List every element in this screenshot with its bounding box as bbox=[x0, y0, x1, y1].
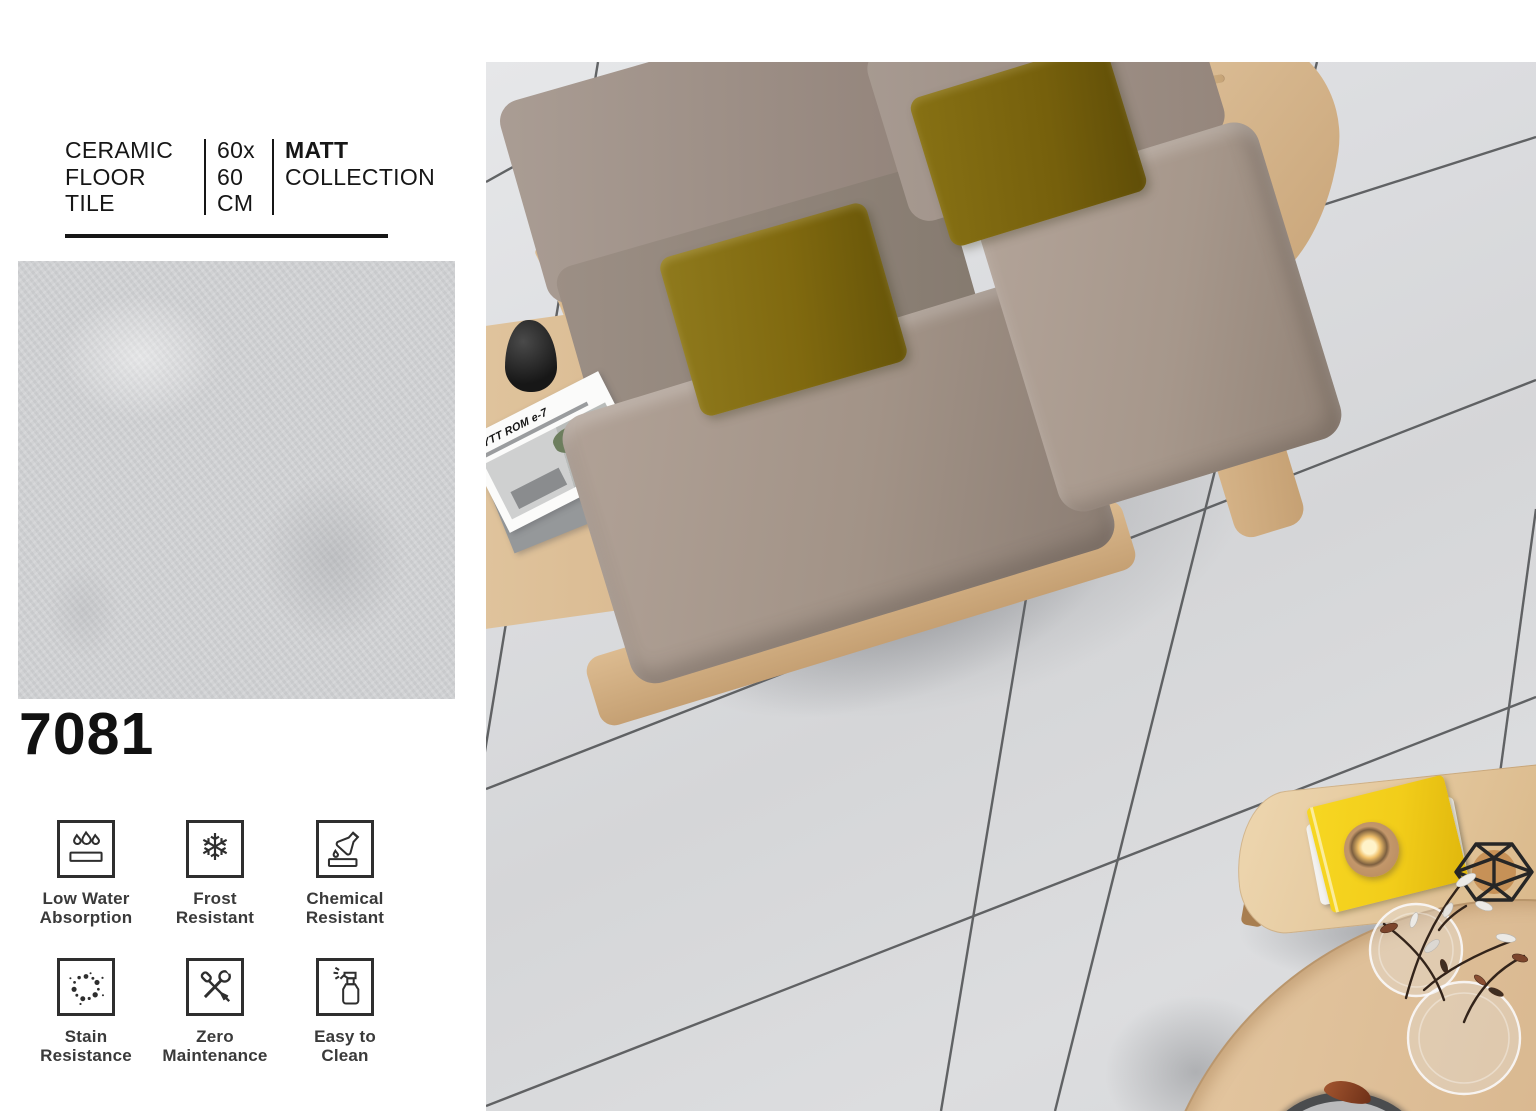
tile-swatch bbox=[18, 261, 455, 699]
glass-vase-with-branches bbox=[1344, 850, 1536, 1111]
feature-box bbox=[186, 958, 244, 1016]
header-rule bbox=[65, 234, 388, 238]
snowflake-icon: ❄ bbox=[199, 829, 230, 866]
feature-label: FrostResistant bbox=[176, 889, 254, 927]
chemical-flask-icon bbox=[323, 827, 367, 871]
feature-box bbox=[57, 958, 115, 1016]
spray-bottle-icon bbox=[323, 965, 367, 1009]
feature-box bbox=[57, 820, 115, 878]
header-divider bbox=[204, 139, 206, 215]
feature-chemical-resistant: ChemicalResistant bbox=[279, 820, 411, 927]
stain-splatter-icon bbox=[64, 965, 108, 1009]
feature-stain-resistance: StainResistance bbox=[20, 958, 152, 1065]
feature-label: ChemicalResistant bbox=[306, 889, 384, 927]
feature-box: ❄ bbox=[186, 820, 244, 878]
tools-icon bbox=[193, 965, 237, 1009]
room-photo: NYTT ROM e-7 bbox=[486, 62, 1536, 1111]
collection-text: MATTCOLLECTION bbox=[285, 137, 435, 217]
feature-zero-maintenance: ZeroMaintenance bbox=[149, 958, 281, 1065]
feature-label: Easy toClean bbox=[314, 1027, 376, 1065]
feature-low-water-absorption: Low WaterAbsorption bbox=[20, 820, 152, 927]
feature-label: ZeroMaintenance bbox=[162, 1027, 267, 1065]
tile-size-text: 60x60CM bbox=[217, 137, 261, 217]
product-code: 7081 bbox=[19, 700, 154, 768]
feature-easy-to-clean: Easy toClean bbox=[279, 958, 411, 1065]
feature-label: Low WaterAbsorption bbox=[40, 889, 133, 927]
feature-frost-resistant: ❄ FrostResistant bbox=[149, 820, 281, 927]
catalog-page: CERAMICFLOORTILE 60x60CM MATTCOLLECTION … bbox=[0, 0, 1536, 1111]
magazine-cover-furniture bbox=[510, 468, 567, 509]
feature-box bbox=[316, 958, 374, 1016]
water-drops-icon bbox=[64, 827, 108, 871]
product-header: CERAMICFLOORTILE 60x60CM MATTCOLLECTION bbox=[65, 137, 435, 217]
product-type-text: CERAMICFLOORTILE bbox=[65, 137, 193, 217]
feature-label: StainResistance bbox=[40, 1027, 132, 1065]
feature-box bbox=[316, 820, 374, 878]
header-divider bbox=[272, 139, 274, 215]
